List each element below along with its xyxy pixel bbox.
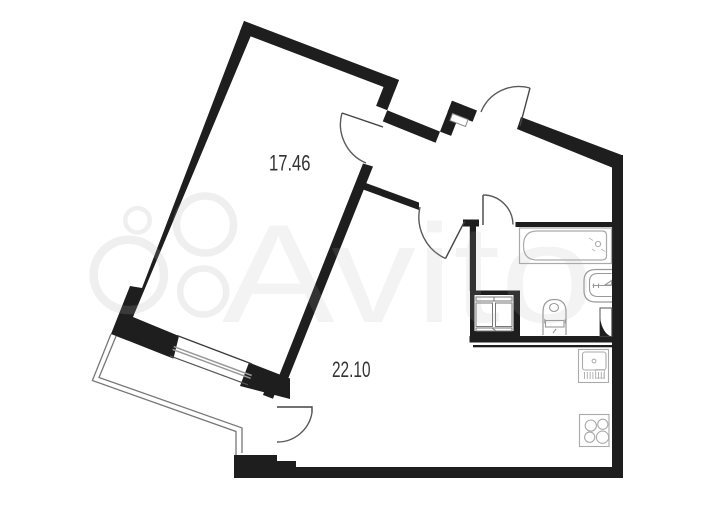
svg-text:17.46: 17.46	[269, 151, 311, 176]
svg-text:22.10: 22.10	[332, 357, 371, 382]
svg-text:Avito: Avito	[222, 195, 594, 352]
